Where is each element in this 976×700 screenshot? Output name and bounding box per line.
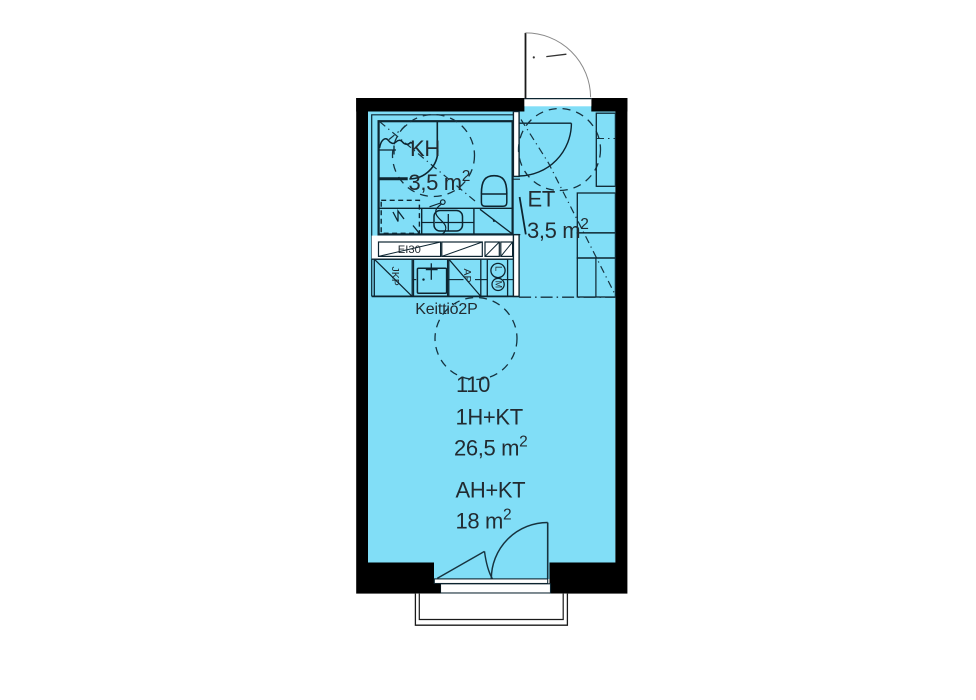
svg-text:1H+KT: 1H+KT [456, 405, 523, 430]
svg-text:M: M [493, 281, 503, 289]
svg-text:18 m2: 18 m2 [456, 507, 512, 534]
svg-text:JKP: JKP [389, 267, 401, 286]
svg-text:ET: ET [528, 186, 555, 211]
svg-text:AH+KT: AH+KT [456, 478, 526, 503]
svg-text:3,5 m2: 3,5 m2 [527, 216, 589, 243]
svg-text:EI30: EI30 [398, 244, 421, 256]
svg-text:AP: AP [461, 269, 473, 283]
svg-text:110: 110 [456, 372, 490, 397]
svg-text:KH: KH [410, 136, 440, 161]
svg-text:L: L [492, 266, 503, 271]
svg-text:3,5 m2: 3,5 m2 [409, 168, 471, 195]
svg-text:26,5 m2: 26,5 m2 [454, 434, 527, 461]
